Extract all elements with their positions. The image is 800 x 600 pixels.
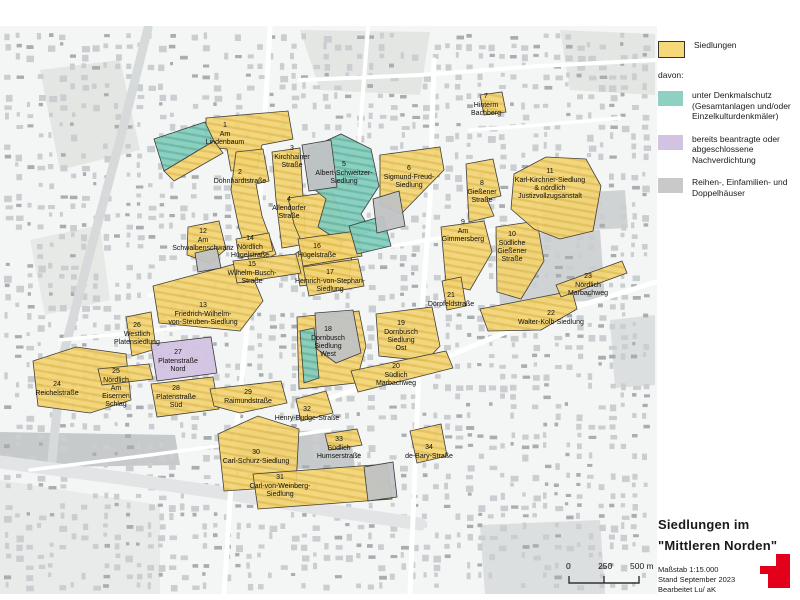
settlement-name-22: Walter-Kolb-Siedlung — [518, 319, 584, 326]
settlement-label-34: 34 — [425, 444, 433, 451]
settlement-name-25: Nördlich — [103, 377, 129, 384]
settlement-name-15: Wilhelm-Busch- — [227, 270, 277, 277]
settlement-name-26: Platensiedlung — [114, 339, 160, 346]
settlement-name-7: Hinterm — [474, 102, 499, 109]
settlement-name-11: & nördlich — [534, 185, 565, 192]
settlement-name-18: Dornbusch — [311, 335, 345, 342]
settlement-name-10: Südliche — [499, 240, 526, 247]
scalebar-tick-500: 500 m — [630, 561, 654, 571]
settlement-name-9: Gimmersberg — [442, 236, 485, 243]
settlement-name-1: Am — [220, 131, 231, 138]
settlement-name-19: Ost — [396, 345, 407, 352]
settlement-label-31: 31 — [276, 474, 284, 481]
settlement-label-1: 1 — [223, 122, 227, 129]
settlement-label-18: 18 — [324, 326, 332, 333]
settlement-label-14: 14 — [246, 235, 254, 242]
settlement-name-12: Am — [198, 237, 209, 244]
settlement-name-14: Nördlich — [237, 244, 263, 251]
settlement-name-11: Karl-Kirchner-Siedlung — [515, 177, 586, 184]
settlement-name-25: Am — [111, 385, 122, 392]
legend-davon-label: davon: — [658, 70, 798, 80]
map-sheet: 1AmLindenbaum2Dohnhardtstraße3Kirchhaine… — [0, 0, 800, 600]
settlement-name-26: Westlich — [124, 331, 150, 338]
settlement-name-28: Süd — [170, 402, 183, 409]
scalebar-bar — [558, 572, 654, 586]
settlement-name-29: Raimundstraße — [224, 398, 272, 405]
settlement-name-23: Nördlich — [575, 282, 601, 289]
settlement-label-25: 25 — [112, 368, 120, 375]
settlement-name-20: Marbachweg — [376, 380, 416, 387]
settlement-label-12: 12 — [199, 228, 207, 235]
legend-swatch-nachverdichtung — [658, 135, 683, 150]
settlement-name-7: Bachberg — [471, 110, 501, 117]
settlement-label-32: 32 — [303, 406, 311, 413]
settlement-label-4: 4 — [287, 196, 291, 203]
settlement-label-26: 26 — [133, 322, 141, 329]
settlement-name-8: Straße — [471, 197, 492, 204]
settlement-name-23: Marbachweg — [568, 290, 608, 297]
settlement-name-27: Nord — [170, 366, 185, 373]
settlement-name-16: Hügelstraße — [298, 252, 336, 259]
settlement-label-21: 21 — [447, 292, 455, 299]
settlement-name-27: Platenstraße — [158, 358, 198, 365]
legend-swatch-reihenhaeuser — [658, 178, 683, 193]
settlement-name-32: Henry-Budge-Straße — [275, 415, 340, 422]
settlement-label-13: 13 — [199, 302, 207, 309]
settlement-name-17: Siedlung — [316, 286, 343, 293]
legend: Siedlungen davon: unter Denkmalschutz (G… — [658, 40, 798, 210]
settlement-name-24: Reichelstraße — [35, 390, 78, 397]
settlement-name-33: Humserstraße — [317, 453, 361, 460]
settlement-name-3: Kirchhainer — [274, 154, 310, 161]
legend-swatch-denkmalschutz — [658, 91, 683, 106]
scalebar-tick-250: 250 — [598, 561, 612, 571]
settlement-name-14: Hügelstraße — [231, 252, 269, 259]
patch-reihenhaeuser-sigmund-freud — [373, 191, 405, 233]
settlement-label-10: 10 — [508, 231, 516, 238]
settlement-name-31: Carl-von-Weinberg- — [250, 483, 312, 490]
scalebar-tick-0: 0 — [566, 561, 571, 571]
settlement-label-28: 28 — [172, 385, 180, 392]
patch-reihenhaeuser-carl-von-weinberg — [364, 462, 397, 501]
settlement-name-19: Siedlung — [387, 337, 414, 344]
settlement-label-3: 3 — [290, 145, 294, 152]
settlement-name-11: Justizvollzugsanstalt — [518, 193, 582, 200]
settlement-name-13: von-Steuben-Siedlung — [168, 319, 237, 326]
settlement-name-25: Schlag — [105, 401, 127, 408]
settlement-label-15: 15 — [248, 261, 256, 268]
settlement-name-10: Straße — [501, 256, 522, 263]
settlement-label-20: 20 — [392, 363, 400, 370]
city-logo — [752, 552, 792, 590]
settlement-name-33: Südlich — [328, 445, 351, 452]
settlement-name-8: Gießener — [467, 189, 497, 196]
settlement-name-31: Siedlung — [266, 491, 293, 498]
settlement-label-11: 11 — [546, 168, 553, 175]
settlement-label-30: 30 — [252, 449, 260, 456]
settlement-name-5: Albert-Schweitzer- — [315, 170, 373, 177]
settlement-label-7: 7 — [484, 93, 488, 100]
settlement-name-5: Siedlung — [330, 178, 357, 185]
settlement-label-23: 23 — [584, 273, 592, 280]
settlement-name-13: Friedrich-Wilhelm- — [175, 311, 232, 318]
settlement-label-19: 19 — [397, 320, 405, 327]
settlement-name-21: Dörpfeldstraße — [428, 301, 474, 308]
legend-label-reihenhaeuser: Reihen-, Einfamilien- und Doppelhäuser — [692, 177, 798, 198]
settlement-name-1: Lindenbaum — [206, 139, 245, 146]
settlement-label-29: 29 — [244, 389, 252, 396]
settlement-name-4: Allendorfer — [272, 205, 307, 212]
legend-swatch-siedlungen — [658, 41, 685, 58]
settlement-name-9: Am — [458, 228, 469, 235]
settlement-name-10: Gießener — [497, 248, 527, 255]
settlement-label-22: 22 — [547, 310, 555, 317]
settlement-label-24: 24 — [53, 381, 61, 388]
settlement-label-2: 2 — [238, 169, 242, 176]
map-title-line1: Siedlungen im — [658, 514, 798, 535]
settlement-name-2: Dohnhardtstraße — [214, 178, 267, 185]
settlement-name-15: Straße — [241, 278, 262, 285]
settlement-label-5: 5 — [342, 161, 346, 168]
settlement-name-25: Eisernen — [102, 393, 130, 400]
settlement-name-6: Siedlung — [395, 182, 422, 189]
legend-label-denkmalschutz: unter Denkmalschutz (Gesamtanlagen und/o… — [692, 90, 798, 122]
settlement-name-17: Heinrich-von-Stephan- — [295, 278, 366, 285]
settlement-label-17: 17 — [326, 269, 334, 276]
settlement-name-20: Südlich — [385, 372, 408, 379]
settlement-label-33: 33 — [335, 436, 343, 443]
scalebar: 0 250 500 m — [558, 561, 654, 591]
settlement-label-27: 27 — [174, 349, 182, 356]
legend-label-nachverdichtung: bereits beantragte oder abgeschlossene N… — [692, 134, 798, 166]
settlement-label-16: 16 — [313, 243, 321, 250]
settlement-name-34: de-Bary-Straße — [405, 453, 453, 460]
settlement-name-18: West — [320, 351, 336, 358]
settlement-name-19: Dornbusch — [384, 329, 418, 336]
settlement-label-9: 9 — [461, 219, 465, 226]
settlement-name-4: Straße — [278, 213, 299, 220]
settlement-name-18: Siedlung — [314, 343, 341, 350]
settlement-name-3: Straße — [281, 162, 302, 169]
settlement-name-6: Sigmund-Freud- — [384, 174, 435, 181]
settlement-label-6: 6 — [407, 165, 411, 172]
settlement-name-12: Schwalbenschwanz — [172, 245, 234, 252]
legend-label-siedlungen: Siedlungen — [694, 40, 737, 51]
settlement-name-30: Carl-Schurz-Siedlung — [223, 458, 290, 465]
settlement-name-28: Platenstraße — [156, 394, 196, 401]
settlement-label-8: 8 — [480, 180, 484, 187]
